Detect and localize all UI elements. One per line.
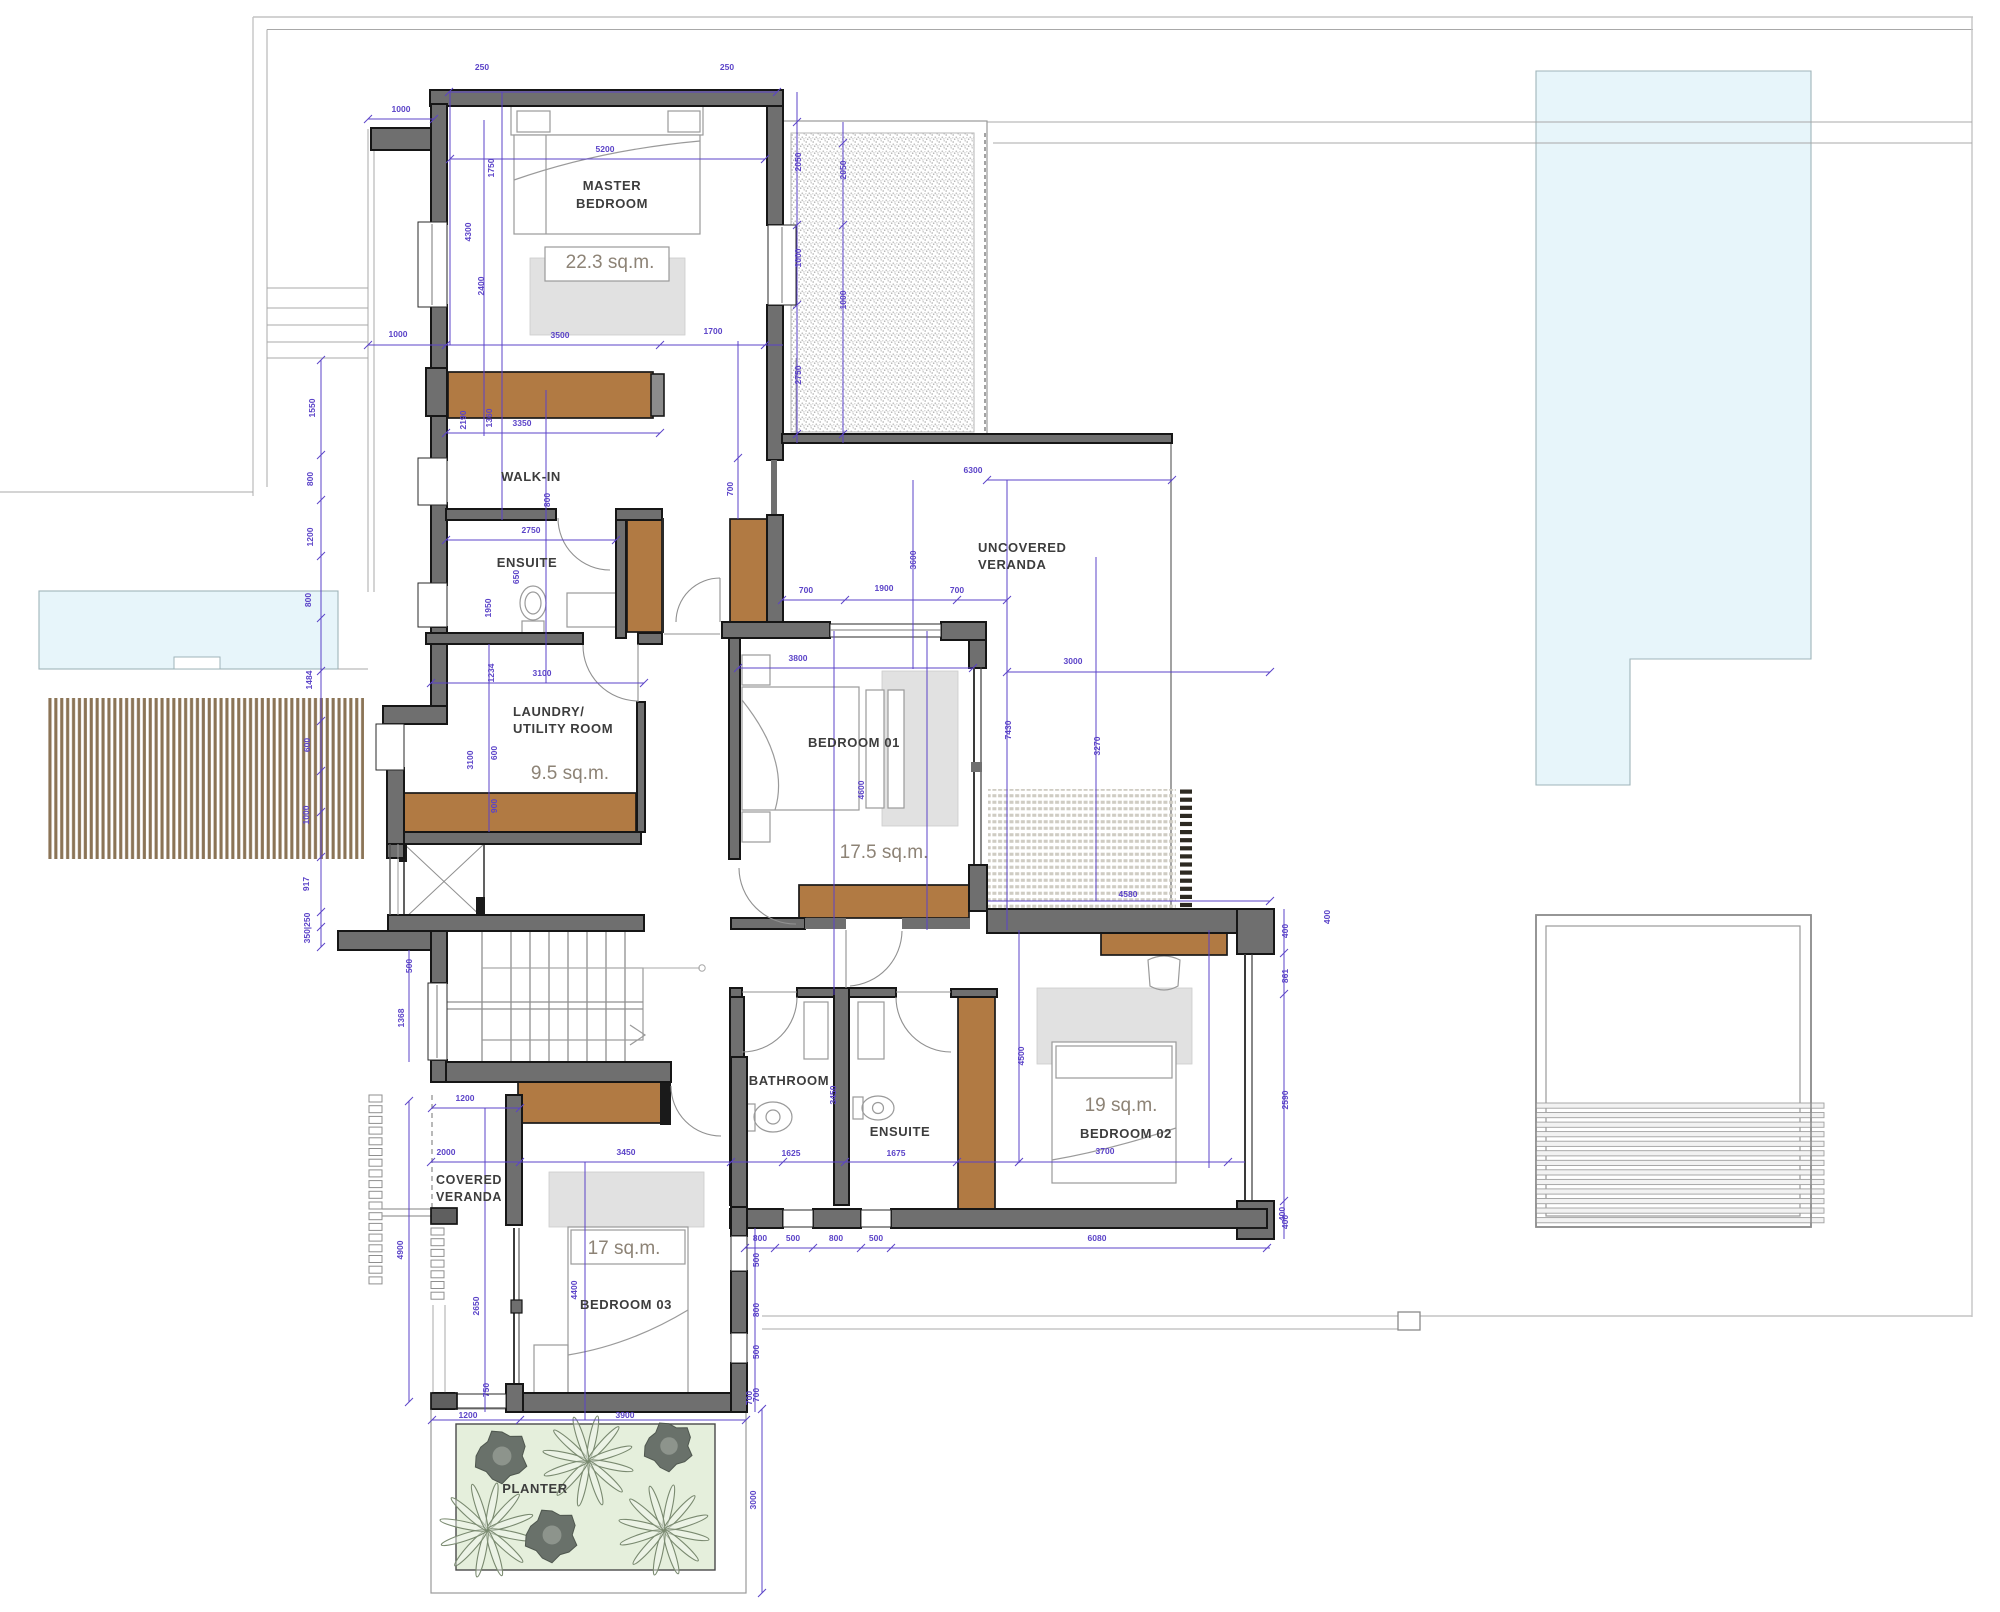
svg-text:1000: 1000 [392,104,411,114]
svg-text:ENSUITE: ENSUITE [870,1124,931,1139]
svg-text:7430: 7430 [1003,720,1013,739]
svg-text:1484: 1484 [304,670,314,689]
svg-text:1000: 1000 [793,248,803,267]
svg-text:1200: 1200 [305,527,315,546]
svg-text:1950: 1950 [483,598,493,617]
svg-text:2000: 2000 [437,1147,456,1157]
svg-text:900: 900 [489,799,499,813]
svg-text:UNCOVERED: UNCOVERED [978,540,1066,555]
svg-text:VERANDA: VERANDA [436,1190,502,1204]
svg-text:1360: 1360 [484,408,494,427]
svg-text:4500: 4500 [1016,1046,1026,1065]
svg-text:1200: 1200 [459,1410,478,1420]
svg-text:BEDROOM 02: BEDROOM 02 [1080,1126,1172,1141]
svg-text:4300: 4300 [463,222,473,241]
svg-text:17 sq.m.: 17 sq.m. [588,1238,661,1259]
svg-text:500: 500 [751,1253,761,1267]
svg-text:6300: 6300 [964,465,983,475]
svg-text:BATHROOM: BATHROOM [749,1073,829,1088]
svg-text:917: 917 [301,877,311,891]
svg-text:22.3 sq.m.: 22.3 sq.m. [566,252,655,273]
svg-text:1200: 1200 [456,1093,475,1103]
svg-text:4600: 4600 [856,780,866,799]
svg-text:700: 700 [751,1388,761,1402]
svg-text:500: 500 [786,1233,800,1243]
svg-text:400: 400 [1277,1207,1287,1221]
svg-text:3600: 3600 [908,550,918,569]
svg-text:4900: 4900 [395,1240,405,1259]
svg-text:700: 700 [950,585,964,595]
svg-text:2750: 2750 [522,525,541,535]
svg-text:2590: 2590 [1280,1090,1290,1109]
svg-text:5200: 5200 [596,144,615,154]
svg-text:1550: 1550 [307,398,317,417]
svg-text:ENSUITE: ENSUITE [497,555,558,570]
svg-text:LAUNDRY/: LAUNDRY/ [513,704,584,719]
svg-text:17.5 sq.m.: 17.5 sq.m. [840,842,929,863]
svg-text:1625: 1625 [782,1148,801,1158]
svg-text:800: 800 [542,493,552,507]
svg-text:COVERED: COVERED [436,1173,502,1187]
svg-text:3450: 3450 [617,1147,636,1157]
svg-text:1750: 1750 [486,158,496,177]
svg-text:3800: 3800 [789,653,808,663]
svg-text:1368: 1368 [396,1008,406,1027]
svg-text:600: 600 [302,738,312,752]
svg-text:BEDROOM 03: BEDROOM 03 [580,1297,672,1312]
svg-text:3700: 3700 [1096,1146,1115,1156]
svg-text:1000: 1000 [301,805,311,824]
svg-text:350|250: 350|250 [302,912,312,943]
svg-text:500: 500 [869,1233,883,1243]
svg-text:MASTER: MASTER [583,178,642,193]
svg-text:4400: 4400 [569,1280,579,1299]
svg-text:800: 800 [303,593,313,607]
svg-text:BEDROOM 01: BEDROOM 01 [808,735,900,750]
svg-text:1000: 1000 [838,290,848,309]
svg-text:650: 650 [511,570,521,584]
svg-text:250: 250 [475,62,489,72]
svg-text:19 sq.m.: 19 sq.m. [1085,1095,1158,1116]
svg-text:250: 250 [720,62,734,72]
svg-text:3350: 3350 [513,418,532,428]
svg-text:3100: 3100 [465,750,475,769]
svg-text:1700: 1700 [704,326,723,336]
svg-text:PLANTER: PLANTER [502,1481,568,1496]
svg-text:2050: 2050 [838,160,848,179]
svg-text:700: 700 [725,482,735,496]
svg-text:1675: 1675 [887,1148,906,1158]
svg-text:BEDROOM: BEDROOM [576,196,648,211]
svg-text:3270: 3270 [1092,736,1102,755]
svg-text:800: 800 [829,1233,843,1243]
svg-text:WALK-IN: WALK-IN [501,469,561,484]
svg-text:600: 600 [489,746,499,760]
svg-text:3500: 3500 [551,330,570,340]
svg-text:400: 400 [1280,924,1290,938]
svg-text:861: 861 [1280,969,1290,983]
svg-text:800: 800 [751,1303,761,1317]
svg-text:750: 750 [481,1383,491,1397]
svg-text:3000: 3000 [748,1490,758,1509]
svg-text:1900: 1900 [875,583,894,593]
svg-text:6080: 6080 [1088,1233,1107,1243]
svg-text:2050: 2050 [793,152,803,171]
svg-text:VERANDA: VERANDA [978,557,1046,572]
svg-text:2400: 2400 [476,276,486,295]
svg-text:3000: 3000 [1064,656,1083,666]
svg-text:2750: 2750 [793,365,803,384]
svg-text:2650: 2650 [471,1296,481,1315]
svg-text:3100: 3100 [533,668,552,678]
svg-text:500: 500 [751,1345,761,1359]
svg-text:4580: 4580 [1119,889,1138,899]
svg-text:1000: 1000 [389,329,408,339]
svg-text:9.5 sq.m.: 9.5 sq.m. [531,763,609,784]
svg-text:1234: 1234 [486,663,496,682]
svg-text:400: 400 [1322,910,1332,924]
svg-text:800: 800 [305,472,315,486]
svg-text:UTILITY ROOM: UTILITY ROOM [513,721,613,736]
svg-text:3450: 3450 [828,1085,838,1104]
svg-text:3900: 3900 [616,1410,635,1420]
svg-text:700: 700 [799,585,813,595]
svg-text:2190: 2190 [458,410,468,429]
